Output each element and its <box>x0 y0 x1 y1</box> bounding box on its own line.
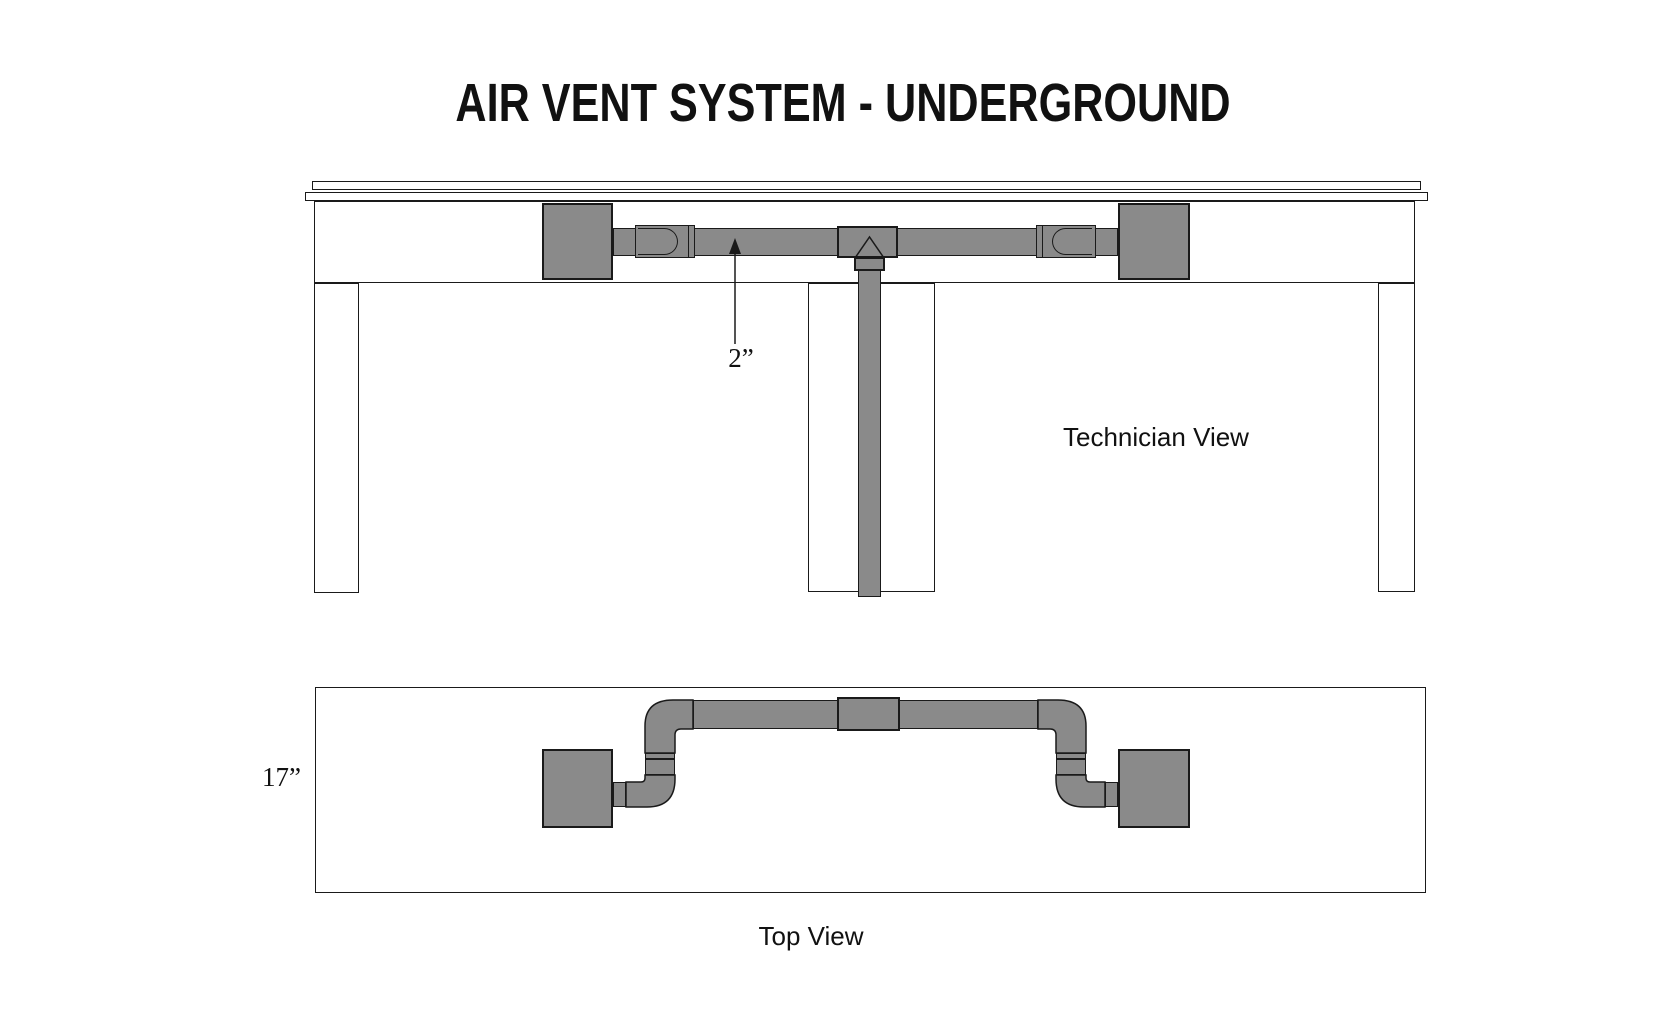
tee-connector-top <box>837 697 900 731</box>
duct-stub-left <box>613 782 626 807</box>
dimension-arrow-2in <box>723 232 747 348</box>
top-vent-box-left <box>542 749 613 828</box>
vent-box-left <box>542 203 613 280</box>
duct-coupling-right <box>1036 225 1096 258</box>
coupling-joint-line <box>688 226 689 257</box>
tabletop-upper-strip <box>312 181 1421 190</box>
vertical-duct <box>858 258 881 597</box>
page-title: AIR VENT SYSTEM - UNDERGROUND <box>455 72 1230 134</box>
coupling-bell-icon <box>1052 228 1092 255</box>
tabletop-lower-strip <box>305 192 1428 201</box>
tee-fitting <box>837 226 898 271</box>
duct-coupling-left <box>635 225 695 258</box>
duct-stub-right <box>1105 782 1118 807</box>
elbow-upper-right <box>1038 698 1086 753</box>
riser-left <box>645 759 675 775</box>
table-leg-left <box>314 283 359 593</box>
coupling-joint-line <box>1042 226 1043 257</box>
dimension-label-2in: 2” <box>728 343 753 374</box>
top-vent-box-right <box>1118 749 1190 828</box>
riser-right <box>1056 759 1086 775</box>
table-leg-right <box>1378 283 1415 592</box>
diagram-canvas: AIR VENT SYSTEM - UNDERGROUND <box>0 0 1670 1020</box>
elbow-upper-left <box>645 698 693 753</box>
elbow-lower-right <box>1056 775 1105 807</box>
elbow-lower-left <box>626 775 675 807</box>
arrowhead-icon <box>729 238 741 254</box>
dimension-label-17in: 17” <box>262 762 301 793</box>
top-view-label: Top View <box>758 921 863 952</box>
vent-box-right <box>1118 203 1190 280</box>
technician-view-label: Technician View <box>1063 422 1249 453</box>
coupling-bell-icon <box>638 228 678 255</box>
